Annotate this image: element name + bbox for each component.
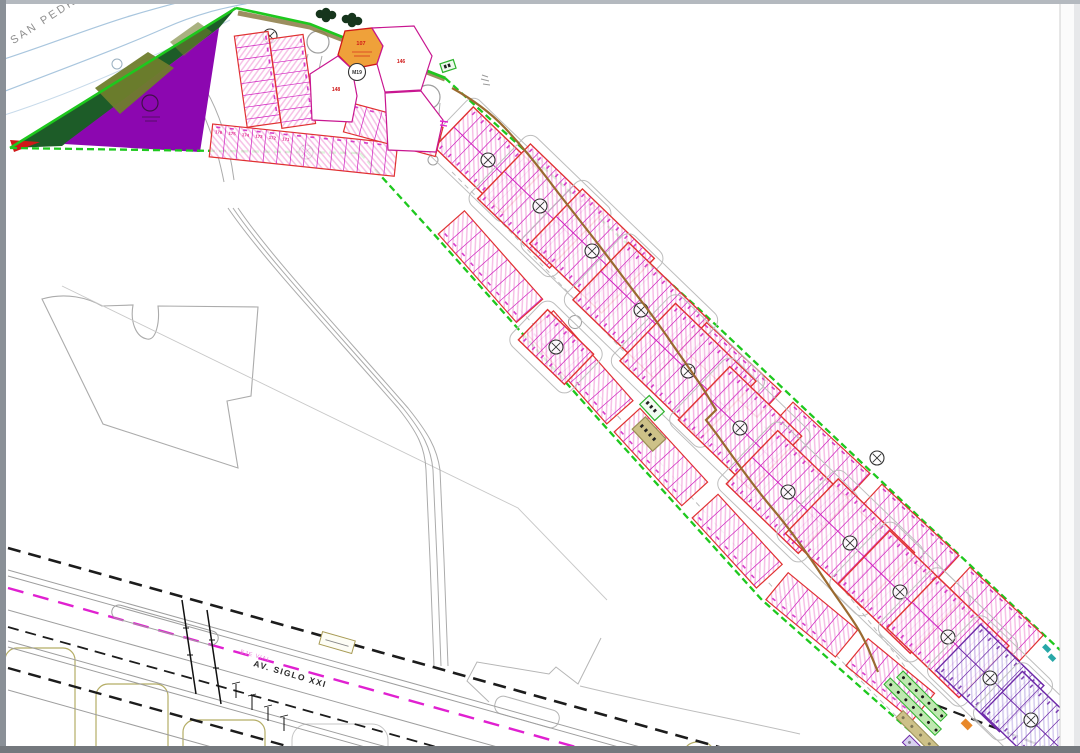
orange-detail: [961, 718, 973, 730]
lot-row-number: 171: [282, 136, 290, 142]
lot-row-number: 174: [242, 132, 250, 138]
frame-bottom: [0, 746, 1080, 753]
block-badge: [983, 671, 997, 685]
frame-left: [0, 0, 6, 753]
avenue-edge: [8, 610, 519, 753]
dirt-road-line: [228, 208, 434, 666]
avenue-note-box: [319, 632, 355, 654]
dirt-road-line: [238, 208, 448, 666]
block-badge: [781, 485, 795, 499]
avenue-edge: [8, 641, 408, 753]
site-plan-svg: 176175174173172171 RIO SAN PEDRO 107 146…: [0, 0, 1080, 753]
block-badge: [843, 536, 857, 550]
road-node: [428, 155, 438, 165]
dimension-line: [207, 610, 221, 704]
scanned-site-plan-page: 176175174173172171 RIO SAN PEDRO 107 146…: [0, 0, 1080, 753]
block-badge: [549, 340, 563, 354]
river-label: RIO SAN PEDRO: [0, 0, 88, 65]
road-island-outline: [493, 694, 561, 729]
big-lot-a-number: 146: [397, 59, 406, 65]
block-badge: [481, 153, 495, 167]
dirt-road-line: [233, 208, 441, 666]
parcel-outline: [467, 638, 601, 702]
teal-detail: [1042, 644, 1051, 653]
avenue-row-dashed: [8, 668, 312, 753]
block-badge: [585, 244, 599, 258]
dim-bracket: [232, 682, 240, 684]
orange-lot-number: 107: [356, 41, 365, 47]
magenta-mark: [440, 121, 448, 122]
avenue-edge: [8, 576, 640, 753]
dimension-line: [182, 600, 196, 694]
lot-row-number: 176: [215, 129, 223, 135]
khaki-parcel-outline: [96, 684, 168, 753]
road-island: [493, 694, 561, 729]
existing-building-outline: [42, 296, 258, 468]
avenue-note-outline: [319, 632, 355, 654]
culdesac-circle: [569, 316, 582, 329]
pond-outline: [112, 59, 122, 69]
lot-row-number: 172: [269, 135, 277, 141]
street-centerline: [452, 172, 940, 715]
entry-block-badge-label: M19: [352, 70, 362, 76]
page-right-shade: [1074, 0, 1080, 753]
frame-top: [0, 0, 1080, 4]
block-badge: [1024, 713, 1038, 727]
big-lot-b-number: 148: [332, 87, 341, 93]
parcel-line: [580, 686, 800, 734]
avenue-edge: [8, 570, 662, 753]
khaki-parcel-outline: [5, 648, 75, 753]
avenue-siglo-xxi: [8, 548, 740, 753]
tree-icon: [348, 19, 357, 28]
lot-row-number: 175: [228, 131, 236, 137]
dim-bracket: [264, 705, 272, 707]
dim-bracket: [280, 715, 288, 717]
block-badge: [733, 421, 747, 435]
tree-icon: [322, 14, 331, 23]
avenue-row-dashed: [8, 548, 740, 753]
block-badge: [634, 303, 648, 317]
block-badge: [941, 630, 955, 644]
block-badge: [870, 451, 884, 465]
teal-detail: [1048, 653, 1056, 661]
rock-symbol: [481, 75, 490, 85]
utility-box: [440, 60, 456, 73]
block-badge: [533, 199, 547, 213]
lot-row-number: 173: [255, 134, 263, 140]
